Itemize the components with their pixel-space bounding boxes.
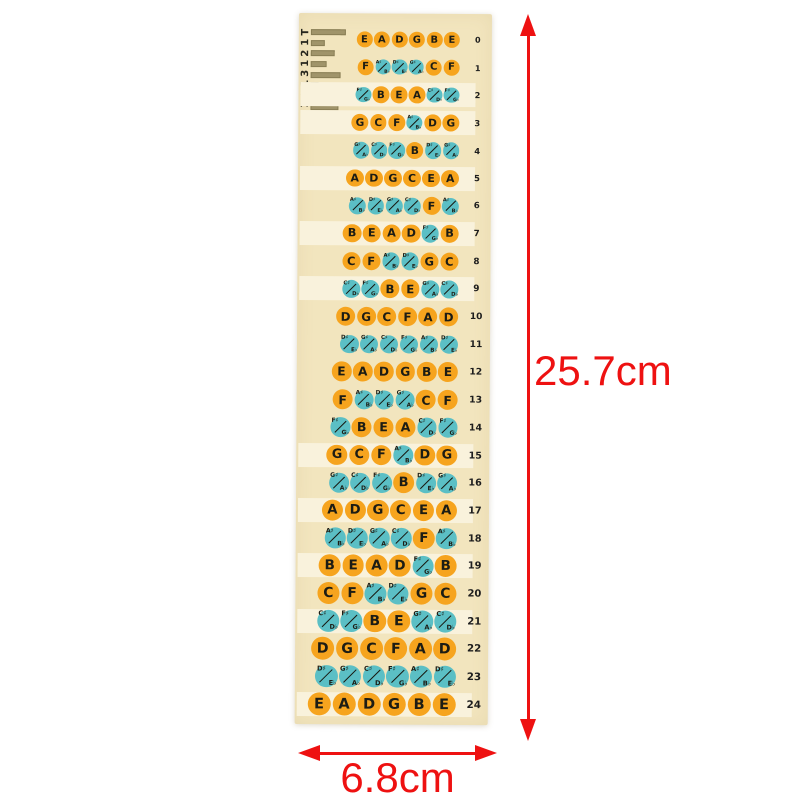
sharp-name: D♯: [441, 336, 448, 342]
note-dot-accidental: C♯D♭: [404, 197, 421, 214]
sharp-name: D♯: [368, 198, 375, 203]
note-dot-natural: C: [317, 582, 339, 604]
note-dot-natural: E: [413, 500, 434, 521]
sharp-name: C♯: [343, 280, 350, 285]
fret-row-1: FA♯B♭D♯E♭G♯A♭CF1: [299, 54, 492, 81]
note-dot-natural: E: [401, 280, 420, 299]
note-dot-natural: D: [402, 224, 420, 242]
note-dot-accidental: C♯D♭: [417, 418, 437, 438]
flat-name: E♭: [386, 403, 393, 409]
note-dot-natural: A: [395, 417, 416, 438]
sharp-name: F♯: [439, 419, 446, 425]
fret-row-0: EADGBE0: [299, 26, 492, 53]
note-dot-accidental: F♯G♭: [422, 225, 439, 242]
note-dot-accidental: G♯A♭: [421, 280, 439, 298]
fret-row-14: F♯G♭BEAC♯D♭F♯G♭14: [296, 414, 489, 441]
note-dot-accidental: D♯E♭: [367, 197, 384, 214]
note-dot-natural: D: [439, 307, 458, 326]
note-dot-natural: E: [342, 555, 364, 577]
flat-name: E♭: [378, 209, 384, 214]
note-dot-natural: D: [374, 362, 394, 382]
note-dot-accidental: F♯G♭: [438, 418, 458, 438]
note-dot-natural: F: [384, 637, 407, 660]
fret-row-6: A♯B♭D♯E♭G♯A♭C♯D♭FA♯B♭6: [298, 192, 491, 219]
note-dot-natural: C: [390, 500, 411, 521]
flat-name: B♭: [431, 348, 438, 354]
note-dot-natural: F: [422, 197, 440, 215]
flat-name: D♭: [414, 209, 421, 214]
fret-row-9: C♯D♭F♯G♭BEG♯A♭C♯D♭9: [297, 275, 490, 302]
note-dots: F♯G♭BEAC♯D♭F♯G♭: [355, 86, 459, 103]
note-dot-natural: G: [351, 114, 368, 131]
note-dot-accidental: A♯B♭: [407, 115, 423, 131]
fret-number: 15: [465, 450, 485, 461]
sharp-name: D♯: [348, 528, 356, 534]
sharp-name: D♯: [426, 143, 432, 148]
fret-row-24: EADGBE24: [295, 691, 488, 718]
note-dot-accidental: F♯G♭: [412, 556, 433, 577]
sharp-name: F♯: [332, 418, 339, 424]
note-dot-natural: C: [370, 114, 387, 131]
note-dot-natural: A: [346, 169, 364, 187]
note-dot-accidental: C♯D♭: [380, 335, 399, 354]
note-dot-natural: B: [351, 417, 372, 438]
fret-row-5: ADGCEA5: [298, 164, 491, 191]
note-dot-natural: F: [341, 582, 363, 604]
note-dots: BEADF♯G♭B: [319, 554, 457, 577]
note-dot-accidental: F♯G♭: [386, 666, 408, 688]
note-dot-natural: F: [437, 390, 457, 410]
sharp-name: G♯: [330, 473, 338, 479]
flat-name: G♭: [342, 430, 350, 436]
fret-row-23: D♯E♭G♯A♭C♯D♭F♯G♭A♯B♭D♯E♭23: [295, 663, 488, 690]
fret-row-7: BEADF♯G♭B7: [298, 220, 491, 247]
flat-name: D♭: [390, 347, 397, 353]
flat-name: A♭: [362, 153, 368, 158]
note-dot-natural: E: [331, 362, 351, 382]
flat-name: A♭: [424, 625, 432, 632]
flat-name: D♭: [451, 292, 458, 297]
sharp-name: F♯: [401, 336, 407, 342]
note-dot-accidental: G♯A♭: [369, 528, 390, 549]
note-dot-accidental: D♯E♭: [340, 335, 359, 354]
sharp-name: C♯: [418, 419, 425, 425]
fret-row-20: CFA♯B♭D♯E♭GC20: [295, 580, 488, 607]
note-dot-natural: D: [344, 500, 365, 521]
product-photo: T1213121 EADGBE0FA♯B♭D♯E♭G♯A♭CF1F♯G♭BEAC…: [0, 0, 800, 800]
note-dot-accidental: D♯E♭: [347, 528, 368, 549]
note-dot-accidental: G♯A♭: [409, 60, 424, 75]
note-dot-natural: C: [360, 637, 383, 660]
note-dot-accidental: C♯D♭: [363, 665, 385, 687]
sharp-name: F♯: [373, 473, 380, 479]
note-dots: EADGBE: [331, 362, 457, 383]
sharp-name: G♯: [340, 666, 349, 673]
width-dimension-label: 6.8cm: [298, 757, 497, 799]
note-dot-natural: G: [367, 500, 388, 521]
flat-name: A♭: [352, 680, 360, 687]
note-dot-natural: A: [353, 362, 373, 382]
note-dot-natural: G: [442, 115, 459, 132]
flat-name: G♭: [449, 431, 457, 437]
note-dot-natural: G: [384, 169, 402, 187]
flat-name: E♭: [451, 348, 457, 354]
note-dot-natural: B: [407, 693, 431, 717]
sharp-name: D♯: [341, 335, 348, 341]
note-dot-natural: F: [357, 59, 373, 75]
flat-name: E♭: [428, 486, 435, 492]
flat-name: E♭: [401, 70, 406, 75]
note-dot-natural: F: [333, 389, 353, 409]
note-dot-accidental: C♯D♭: [350, 473, 370, 493]
flat-name: E♭: [401, 597, 408, 603]
fret-number: 17: [465, 505, 485, 516]
note-dot-natural: C: [440, 252, 459, 271]
note-dot-accidental: D♯E♭: [401, 252, 419, 270]
note-dots: DGCFAD: [336, 307, 458, 327]
flat-name: D♭: [428, 431, 436, 437]
note-dot-natural: D: [391, 32, 407, 48]
sharp-name: C♯: [381, 336, 388, 342]
flat-name: B♭: [405, 458, 412, 464]
height-dimension-label: 25.7cm: [534, 350, 672, 392]
fret-row-12: EADGBE12: [297, 358, 490, 385]
note-dot-accidental: F♯G♭: [340, 610, 362, 632]
sharp-name: A♯: [437, 529, 445, 535]
note-dot-accidental: F♯G♭: [372, 473, 392, 493]
sharp-name: A♯: [394, 446, 402, 452]
fret-number: 21: [464, 616, 484, 627]
sharp-name: A♯: [408, 115, 414, 120]
sharp-name: D♯: [376, 391, 384, 397]
note-dots: EADGBE: [356, 31, 460, 48]
sharp-name: G♯: [410, 60, 416, 65]
vertical-dimension-line: [527, 28, 530, 727]
fret-number: 1: [468, 63, 488, 73]
sharp-name: A♯: [355, 391, 362, 397]
note-dot-accidental: C♯D♭: [391, 528, 412, 549]
flat-name: G♭: [383, 486, 391, 492]
flat-name: G♭: [410, 348, 417, 354]
flat-name: E♭: [329, 680, 337, 687]
sharp-name: C♯: [442, 281, 449, 286]
flat-name: A♭: [452, 154, 458, 159]
note-dot-natural: B: [426, 32, 442, 48]
fret-row-22: DGCFAD22: [295, 635, 488, 662]
fret-row-18: A♯B♭D♯E♭G♯A♭C♯D♭FA♯B♭18: [296, 525, 489, 552]
fret-row-2: F♯G♭BEAC♯D♭F♯G♭2: [298, 81, 491, 108]
note-dot-natural: D: [365, 169, 383, 187]
note-dot-accidental: F♯G♭: [400, 335, 419, 354]
note-dot-accidental: D♯E♭: [434, 666, 456, 688]
fret-number: 20: [464, 589, 484, 600]
sharp-name: F♯: [389, 143, 395, 148]
note-dots: C♯D♭F♯G♭BEG♯A♭C♯D♭: [342, 279, 458, 299]
note-dot-accidental: G♯A♭: [437, 473, 457, 493]
note-dot-accidental: D♯E♭: [315, 665, 337, 687]
note-dot-accidental: D♯E♭: [375, 390, 394, 409]
note-dot-accidental: A♯B♭: [354, 390, 373, 409]
note-dot-accidental: A♯B♭: [365, 583, 386, 604]
note-dot-accidental: A♯B♭: [349, 197, 366, 214]
note-dots: DGCFAD: [311, 637, 456, 661]
note-dot-accidental: A♯B♭: [325, 527, 346, 548]
note-dot-natural: E: [432, 693, 456, 717]
fret-number: 24: [464, 699, 484, 711]
sharp-name: G♯: [397, 391, 405, 397]
sharp-name: D♯: [402, 253, 409, 258]
note-dot-natural: G: [437, 445, 458, 466]
flat-name: D♭: [436, 98, 442, 103]
note-dot-natural: E: [391, 87, 408, 104]
flat-name: G♭: [432, 237, 439, 242]
note-dot-natural: C: [349, 444, 370, 465]
note-dot-natural: A: [322, 499, 343, 520]
note-dot-natural: E: [444, 32, 460, 48]
note-dot-natural: A: [374, 31, 390, 47]
note-dot-accidental: F♯G♭: [388, 142, 404, 158]
flat-name: A♭: [449, 486, 457, 492]
note-dots: D♯E♭G♯A♭C♯D♭F♯G♭A♯B♭D♯E♭: [340, 335, 458, 354]
note-dots: FA♯B♭D♯E♭G♯A♭CF: [333, 389, 458, 410]
sharp-name: F♯: [423, 226, 429, 231]
sharp-name: F♯: [388, 666, 396, 673]
note-dots: D♯E♭G♯A♭C♯D♭F♯G♭A♯B♭D♯E♭: [315, 665, 456, 688]
note-dot-accidental: C♯D♭: [317, 610, 339, 632]
note-dot-accidental: C♯D♭: [371, 142, 387, 158]
flat-name: G♭: [399, 680, 408, 687]
note-dot-natural: D: [414, 445, 435, 466]
note-dot-accidental: D♯E♭: [392, 60, 407, 75]
note-dots: G♯A♭C♯D♭F♯G♭BD♯E♭G♯A♭: [329, 472, 458, 494]
note-dot-accidental: G♯A♭: [443, 143, 459, 159]
flat-name: G♭: [453, 98, 459, 103]
sticker-sheet: T1213121 EADGBE0FA♯B♭D♯E♭G♯A♭CF1F♯G♭BEAC…: [295, 13, 492, 725]
fret-row-8: CFA♯B♭D♯E♭GC8: [297, 248, 490, 275]
note-dot-natural: B: [319, 554, 341, 576]
note-dot-natural: D: [336, 307, 355, 326]
note-dot-natural: B: [381, 279, 400, 298]
note-dot-natural: G: [336, 637, 359, 660]
note-dot-accidental: G♯A♭: [339, 665, 361, 687]
note-dots: CFA♯B♭D♯E♭GC: [342, 252, 459, 271]
sharp-name: C♯: [436, 612, 444, 619]
note-dot-natural: D: [424, 114, 441, 131]
fret-number: 22: [464, 644, 484, 655]
note-dot-accidental: A♯B♭: [442, 198, 459, 215]
flat-name: E♭: [351, 347, 357, 353]
flat-name: B♭: [448, 542, 456, 548]
note-dot-natural: F: [362, 252, 381, 271]
note-dot-accidental: F♯G♭: [355, 87, 371, 103]
note-dot-accidental: D♯E♭: [425, 142, 441, 158]
fret-number: 16: [465, 478, 485, 489]
note-dot-natural: D: [357, 692, 381, 716]
fret-number: 3: [467, 118, 487, 128]
flat-name: A♭: [340, 486, 348, 492]
note-dots: A♯B♭D♯E♭G♯A♭C♯D♭FA♯B♭: [325, 527, 457, 549]
flat-name: G♭: [424, 570, 432, 576]
sharp-name: G♯: [438, 474, 446, 480]
note-dot-natural: F: [388, 114, 405, 131]
note-dot-accidental: A♯B♭: [436, 528, 457, 549]
sharp-name: G♯: [354, 143, 360, 148]
arrow-down-icon: [520, 719, 536, 741]
note-dot-natural: D: [389, 555, 411, 577]
note-dot-accidental: G♯A♭: [329, 472, 349, 492]
note-dot-natural: F: [371, 445, 392, 466]
fret-row-10: DGCFAD10: [297, 303, 490, 330]
sharp-name: G♯: [370, 529, 378, 535]
fret-row-15: GCFA♯B♭DG15: [296, 441, 489, 468]
sharp-name: G♯: [444, 143, 450, 148]
fret-number: 7: [467, 229, 487, 239]
sharp-name: A♯: [376, 60, 382, 65]
note-dots: A♯B♭D♯E♭G♯A♭C♯D♭FA♯B♭: [349, 197, 459, 216]
note-dot-natural: G: [409, 32, 425, 48]
sharp-name: A♯: [326, 528, 334, 534]
note-dots: FA♯B♭D♯E♭G♯A♭CF: [357, 59, 459, 76]
note-dot-accidental: D♯E♭: [416, 473, 436, 493]
sharp-name: F♯: [362, 280, 368, 285]
note-dot-natural: A: [436, 500, 457, 521]
note-dot-natural: C: [342, 252, 361, 271]
note-dot-accidental: A♯B♭: [375, 60, 390, 75]
flat-name: B♭: [392, 264, 398, 269]
flat-name: B♭: [377, 597, 385, 603]
sharp-name: C♯: [319, 611, 327, 618]
sharp-name: D♯: [393, 60, 399, 65]
flat-name: D♭: [361, 486, 369, 492]
note-dots: C♯D♭F♯G♭BEG♯A♭C♯D♭: [317, 610, 456, 633]
note-dot-accidental: G♯A♭: [353, 142, 369, 158]
note-dots: F♯G♭BEAC♯D♭F♯G♭: [331, 417, 458, 438]
note-dot-accidental: C♯D♭: [440, 280, 458, 298]
note-dot-natural: E: [373, 417, 394, 438]
sharp-name: G♯: [422, 281, 429, 286]
note-dot-natural: E: [422, 169, 440, 187]
note-dot-accidental: D♯E♭: [387, 583, 408, 604]
fret-number: 0: [468, 36, 488, 45]
fret-number: 5: [467, 174, 487, 184]
note-dot-accidental: C♯D♭: [427, 87, 443, 103]
sharp-name: D♯: [417, 474, 425, 480]
note-dot-natural: B: [393, 472, 414, 493]
note-dot-accidental: G♯A♭: [360, 335, 379, 354]
flat-name: D♭: [375, 680, 384, 687]
note-dot-natural: C: [377, 307, 396, 326]
note-dot-natural: E: [438, 362, 458, 382]
flat-name: A♭: [371, 347, 378, 353]
note-dot-natural: D: [433, 638, 456, 661]
note-dot-accidental: F♯G♭: [361, 280, 379, 298]
fret-rows: EADGBE0FA♯B♭D♯E♭G♯A♭CF1F♯G♭BEAC♯D♭F♯G♭2G…: [299, 13, 492, 14]
sharp-name: D♯: [317, 666, 326, 673]
sharp-name: C♯: [372, 143, 378, 148]
flat-name: D♭: [447, 625, 455, 632]
flat-name: E♭: [435, 153, 441, 158]
note-dot-natural: A: [365, 555, 387, 577]
fret-row-17: ADGCEA17: [296, 497, 489, 524]
note-dot-natural: B: [406, 142, 423, 159]
sharp-name: G♯: [413, 611, 421, 618]
fret-row-16: G♯A♭C♯D♭F♯G♭BD♯E♭G♯A♭16: [296, 469, 489, 496]
note-dot-natural: A: [409, 87, 426, 104]
fret-number: 4: [467, 146, 487, 156]
fret-row-3: GCFA♯B♭DG3: [298, 109, 491, 136]
fret-number: 6: [467, 201, 487, 211]
sharp-name: A♯: [411, 667, 419, 674]
note-dot-natural: A: [418, 307, 437, 326]
fret-row-11: D♯E♭G♯A♭C♯D♭F♯G♭A♯B♭D♯E♭11: [297, 331, 490, 358]
fret-row-4: G♯A♭C♯D♭F♯G♭BD♯E♭G♯A♭4: [298, 137, 491, 164]
flat-name: B♭: [337, 541, 345, 547]
note-dot-natural: E: [356, 31, 372, 47]
note-dot-natural: D: [311, 637, 334, 660]
note-dot-natural: G: [395, 362, 415, 382]
note-dots: ADGCEA: [346, 169, 459, 187]
flat-name: E♭: [412, 264, 418, 269]
sharp-name: A♯: [350, 198, 356, 203]
note-dot-natural: B: [435, 555, 457, 577]
flat-name: A♭: [432, 292, 439, 297]
note-dot-natural: B: [417, 362, 437, 382]
flat-name: A♭: [396, 209, 402, 214]
note-dot-natural: G: [420, 252, 439, 271]
sharp-name: C♯: [428, 88, 434, 93]
sharp-name: C♯: [405, 198, 411, 203]
sharp-name: C♯: [392, 529, 400, 535]
flat-name: B♭: [384, 70, 390, 75]
note-dots: EADGBE: [307, 692, 456, 716]
fret-number: 11: [466, 340, 486, 350]
note-dot-natural: B: [343, 224, 361, 242]
fret-number: 8: [466, 257, 486, 267]
flat-name: D♭: [403, 542, 411, 548]
note-dot-natural: C: [426, 59, 442, 75]
note-dot-accidental: C♯D♭: [342, 280, 360, 298]
fret-number: 13: [466, 395, 486, 406]
sharp-name: F♯: [342, 611, 350, 618]
note-dot-natural: A: [441, 170, 459, 188]
flat-name: D♭: [352, 292, 359, 297]
flat-name: G♭: [364, 97, 370, 102]
note-dot-accidental: G♯A♭: [395, 390, 414, 409]
fret-number: 10: [466, 312, 486, 322]
flat-name: G♭: [372, 292, 379, 297]
note-dot-accidental: G♯A♭: [412, 611, 434, 633]
flat-name: A♭: [418, 70, 424, 75]
flat-name: E♭: [447, 681, 455, 688]
note-dot-natural: B: [372, 87, 389, 104]
note-dot-natural: A: [332, 692, 356, 716]
note-dot-accidental: G♯A♭: [386, 197, 403, 214]
fret-row-13: FA♯B♭D♯E♭G♯A♭CF13: [297, 386, 490, 413]
note-dot-natural: G: [327, 444, 348, 465]
sharp-name: F♯: [445, 88, 450, 93]
fret-number: 19: [465, 561, 485, 572]
note-dot-natural: C: [434, 583, 456, 605]
note-dots: GCFA♯B♭DG: [327, 444, 458, 465]
note-dot-accidental: A♯B♭: [382, 252, 400, 270]
note-dots: CFA♯B♭D♯E♭GC: [317, 582, 456, 605]
fret-number: 12: [466, 367, 486, 378]
note-dot-accidental: D♯E♭: [440, 335, 459, 354]
flat-name: D♭: [329, 625, 337, 632]
note-dot-natural: E: [307, 692, 331, 716]
sharp-name: A♯: [421, 336, 428, 342]
note-dots: G♯A♭C♯D♭F♯G♭BD♯E♭G♯A♭: [353, 141, 459, 159]
